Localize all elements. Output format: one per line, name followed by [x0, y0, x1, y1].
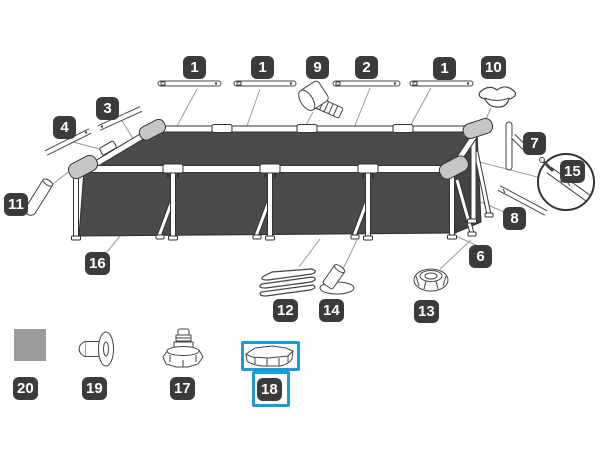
part-label-9[interactable]: 9	[306, 56, 329, 79]
part-label-19[interactable]: 19	[82, 377, 107, 400]
part-label-7[interactable]: 7	[523, 132, 546, 155]
part-label-1a[interactable]: 1	[183, 56, 206, 79]
part-label-3[interactable]: 3	[96, 97, 119, 120]
part-label-2[interactable]: 2	[355, 56, 378, 79]
part-10-corner-cover	[479, 87, 515, 107]
part-label-11[interactable]: 11	[4, 193, 28, 216]
part-label-6[interactable]: 6	[469, 245, 492, 268]
part-13-nut-fitting	[414, 269, 448, 291]
part-1-rail-tube-b	[234, 81, 296, 86]
part-17-drain-valve[interactable]	[163, 329, 203, 367]
highlight-box-part-18	[241, 341, 300, 371]
part-19-wall-fitting[interactable]	[79, 332, 113, 366]
part-2-rail-tube	[333, 81, 400, 86]
part-12-coil	[260, 269, 316, 296]
part-label-13[interactable]: 13	[414, 300, 439, 323]
part-20-patch-swatch[interactable]	[14, 329, 46, 361]
pool-body-illustration	[79, 131, 481, 236]
part-1-rail-tube-c	[410, 81, 473, 86]
part-label-4[interactable]: 4	[53, 116, 76, 139]
part-1-rail-tube-a	[158, 81, 221, 86]
part-label-14[interactable]: 14	[319, 299, 344, 322]
part-label-12[interactable]: 12	[273, 299, 298, 322]
part-label-8[interactable]: 8	[503, 207, 526, 230]
part-label-1c[interactable]: 1	[433, 57, 456, 80]
part-label-17[interactable]: 17	[170, 377, 195, 400]
part-label-16[interactable]: 16	[85, 252, 110, 275]
parts-diagram-page: 1 1 9 2 1 10 3 4 7 15 8 11 16 6 12 14 13…	[0, 0, 600, 450]
part-label-20[interactable]: 20	[13, 377, 38, 400]
part-label-10[interactable]: 10	[481, 56, 506, 79]
part-label-1b[interactable]: 1	[251, 56, 274, 79]
part-14-drain-fitting	[320, 263, 354, 294]
part-label-15[interactable]: 15	[560, 160, 585, 183]
part-label-18[interactable]: 18	[257, 378, 282, 401]
